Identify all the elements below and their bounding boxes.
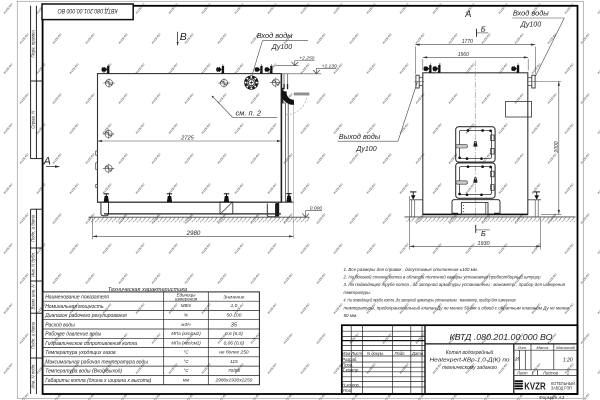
svg-text:0,06 (0,6): 0,06 (0,6) (224, 340, 245, 346)
svg-text:50-100: 50-100 (226, 313, 241, 319)
svg-text:Б: Б (481, 25, 486, 34)
svg-text:Формат А3: Формат А3 (539, 395, 565, 400)
svg-text:Н.контр.: Н.контр. (342, 382, 360, 387)
svg-text:115: 115 (230, 359, 238, 365)
svg-text:N докум.: N докум. (367, 351, 384, 356)
svg-text:Изм Лист: Изм Лист (342, 351, 362, 356)
svg-text:Температура уходящих газов: Температура уходящих газов (45, 350, 116, 356)
svg-text:Номинальная мощность: Номинальная мощность (45, 304, 104, 310)
svg-text:°С: °С (183, 359, 189, 364)
svg-text:4. На отводящей трубе котла ,: 4. На отводящей трубе котла ,до запорной… (344, 297, 516, 303)
svg-text:техническому заданию: техническому заданию (442, 365, 497, 371)
svg-text:А: А (464, 9, 471, 19)
svg-text:Котел водогрейный: Котел водогрейный (446, 349, 494, 356)
svg-text:Рабочее давление воды: Рабочее давление воды (45, 332, 101, 338)
svg-text:0,6 (6,0): 0,6 (6,0) (225, 331, 243, 337)
svg-text:Гидравлическое сопротивление к: Гидравлическое сопротивление котла (45, 341, 137, 347)
svg-text:°С: °С (183, 350, 189, 355)
svg-text:Наименование показателя: Наименование показателя (45, 294, 109, 300)
svg-text:1930: 1930 (478, 241, 490, 247)
svg-text:Т.контр.: Т.контр. (342, 367, 359, 372)
svg-text:А: А (43, 156, 51, 168)
svg-text:1,0: 1,0 (231, 303, 238, 309)
svg-text:Взам. инв. N: Взам. инв. N (31, 284, 36, 310)
svg-text:измерения: измерения (175, 296, 198, 301)
svg-text:Подп.: Подп. (395, 351, 406, 356)
svg-text:Масса: Масса (536, 345, 549, 350)
svg-text:Heatexpert-КВр-1,0-Д(К) по: Heatexpert-КВр-1,0-Д(К) по (430, 358, 510, 364)
svg-text:Инв. N подл.: Инв. N подл. (31, 363, 36, 388)
svg-text:2. На боковой стенке котла в: 2. На боковой стенке котла в области топ… (343, 274, 541, 280)
svg-text:Вход воды: Вход воды (513, 9, 549, 18)
svg-text:Расход воды: Расход воды (45, 322, 75, 328)
svg-text:Дата: Дата (411, 351, 424, 356)
svg-text:КВТД.080.201.00.000 ВО: КВТД.080.201.00.000 ВО (57, 7, 117, 13)
svg-text:1560: 1560 (458, 52, 469, 58)
svg-text:1. Все размеры для справок ,: 1. Все размеры для справок , допустимые … (344, 267, 479, 272)
svg-text:Вход воды: Вход воды (257, 31, 293, 40)
svg-text:Ду100: Ду100 (355, 146, 376, 153)
svg-text:см. п. 2: см. п. 2 (236, 108, 262, 117)
svg-text:ЗАВОД РЭП: ЗАВОД РЭП (551, 386, 572, 391)
svg-text:1770: 1770 (462, 39, 473, 45)
svg-text:м3/ч: м3/ч (181, 322, 191, 327)
svg-text:35: 35 (231, 323, 238, 329)
svg-text:температуры.: температуры. (344, 290, 372, 295)
svg-text:Ду100: Ду100 (271, 44, 292, 51)
svg-text:Справ. N: Справ. N (31, 110, 36, 129)
svg-text:Б: Б (481, 229, 486, 238)
svg-text:В: В (180, 31, 187, 43)
svg-text:Температура воды (Вход/выход): Температура воды (Вход/выход) (45, 369, 122, 375)
svg-text:°С: °С (183, 368, 189, 373)
svg-text:мм: мм (183, 377, 189, 382)
svg-text:KVZR: KVZR (524, 381, 546, 392)
svg-text:Утв.: Утв. (342, 388, 352, 393)
svg-text:Лист: Лист (516, 371, 528, 376)
svg-text:Перв. примен.: Перв. примен. (31, 29, 36, 58)
svg-text:Подп. и дата: Подп. и дата (31, 321, 36, 349)
svg-text:2000: 2000 (554, 141, 560, 153)
svg-text:70/95: 70/95 (228, 368, 240, 374)
svg-text:%: % (184, 313, 188, 318)
svg-text:Выход воды: Выход воды (339, 132, 381, 141)
svg-text:2725: 2725 (180, 135, 194, 141)
svg-text:МПа (кгс/см2): МПа (кгс/см2) (171, 331, 201, 336)
svg-text:Значение: Значение (223, 294, 244, 300)
svg-text:МПа (кгс/см2): МПа (кгс/см2) (171, 340, 201, 345)
svg-text:1: 1 (532, 371, 534, 376)
svg-text:Масштаб: Масштаб (556, 345, 575, 350)
svg-text:Максимальная рабочая температу: Максимальная рабочая температура воды (45, 359, 148, 365)
svg-text:не более 250: не более 250 (219, 350, 249, 356)
svg-text:КВТД .080.201.00.000 ВО: КВТД .080.201.00.000 ВО (450, 332, 553, 342)
svg-text:Листов: Листов (542, 371, 559, 376)
svg-text:И: И (515, 357, 519, 363)
svg-text:1:20: 1:20 (563, 358, 573, 364)
svg-text:Лит.: Лит. (517, 345, 527, 350)
svg-text:Ду100: Ду100 (520, 21, 541, 28)
svg-text:МВт: МВт (181, 303, 192, 308)
svg-text:50 мм.: 50 мм. (344, 313, 358, 318)
svg-text:температуры, предохранительный: температуры, предохранительный клапан Ду… (344, 304, 570, 310)
svg-text:2980: 2980 (186, 230, 201, 237)
svg-text:Диапазон рабочего регулировани: Диапазон рабочего регулирования (44, 313, 127, 319)
svg-text:Инв. N дубл.: Инв. N дубл. (31, 252, 36, 277)
svg-text:2980х1930х2250: 2980х1930х2250 (214, 377, 252, 383)
svg-text:Подп. и дата: Подп. и дата (31, 214, 36, 242)
svg-text:Габариты котла (длина х ширина: Габариты котла (длина х ширина х высота) (45, 378, 152, 384)
svg-text:3. На подводящей трубе котла: 3. На подводящей трубе котла , до запорн… (344, 281, 566, 287)
svg-text:Разраб.: Разраб. (342, 357, 357, 362)
